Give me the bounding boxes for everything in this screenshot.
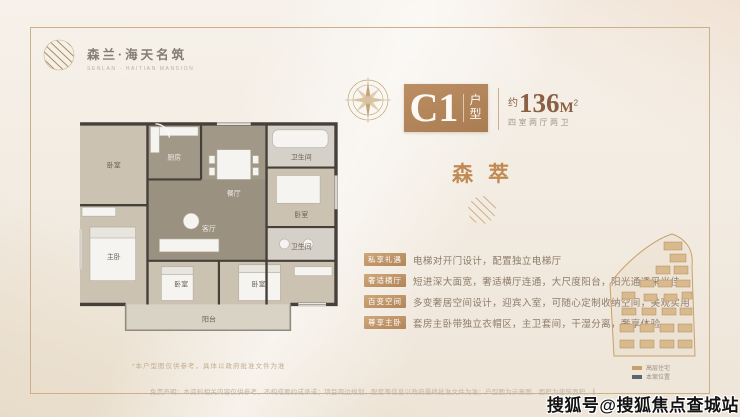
brand-logo: 森兰·海天名筑 SENLAN · HAITIAN MANSION [42, 38, 194, 77]
room-label: 卧室 [294, 210, 308, 219]
room-label: 卧室 [252, 280, 266, 289]
feature-desc: 电梯对开门设计，配置独立电梯厅 [413, 253, 562, 267]
room-label: 卧室 [174, 280, 188, 289]
theme-title: 森萃 [452, 158, 524, 188]
unit-code-box: C1 户 型 [404, 84, 488, 132]
unit-area: 约136M2 [508, 88, 578, 119]
brand-name: 森兰·海天名筑 [87, 44, 194, 63]
unit-type-label: 户 型 [463, 94, 482, 122]
room-label: 阳台 [202, 314, 216, 323]
feature-tag: 奢适横厅 [364, 274, 406, 287]
room-label: 厨房 [167, 153, 181, 162]
unit-spec: 四室两厅两卫 [508, 117, 571, 128]
legal-disclaimer: 免责声明：本资料相关内容仅供参考，不构成要约或承诺；项目周边规划、配套等信息以政… [150, 386, 595, 396]
feature-tag: 私享礼遇 [364, 253, 406, 266]
brand-subtitle: SENLAN · HAITIAN MANSION [87, 66, 194, 72]
room-label: 卫生间 [291, 242, 312, 251]
legend-label: 本案位置 [646, 372, 670, 381]
room-label: 卫生间 [291, 153, 312, 162]
legend-label: 高层住宅 [646, 363, 670, 372]
floor-plan-caption: *本户型图仅供参考，具体以政府批准文件为准 [132, 360, 286, 370]
room-label: 主卧 [107, 252, 121, 261]
site-plan [604, 230, 716, 369]
header-divider [498, 88, 499, 130]
legend-row: 高层住宅 [632, 363, 670, 372]
legend-row: 本案位置 [632, 372, 670, 381]
room-label: 餐厅 [227, 188, 241, 197]
feature-tag: 尊享主卧 [364, 316, 406, 329]
site-plan-legend: 高层住宅 本案位置 [632, 363, 670, 381]
room-label: 客厅 [202, 224, 216, 233]
watermark: 搜狐号@搜狐焦点查城站 [547, 391, 739, 416]
unit-code: C1 [410, 88, 459, 128]
feature-tag: 百变空间 [364, 295, 406, 308]
brand-sphere-icon [42, 38, 76, 77]
floor-plan: 卧室 主卧 厨房 餐厅 卫生间 卧室 客厅 卫生间 卧室 卧室 阳台 [60, 110, 358, 365]
room-label: 卧室 [107, 161, 121, 170]
theme-sphere-icon [466, 194, 498, 231]
